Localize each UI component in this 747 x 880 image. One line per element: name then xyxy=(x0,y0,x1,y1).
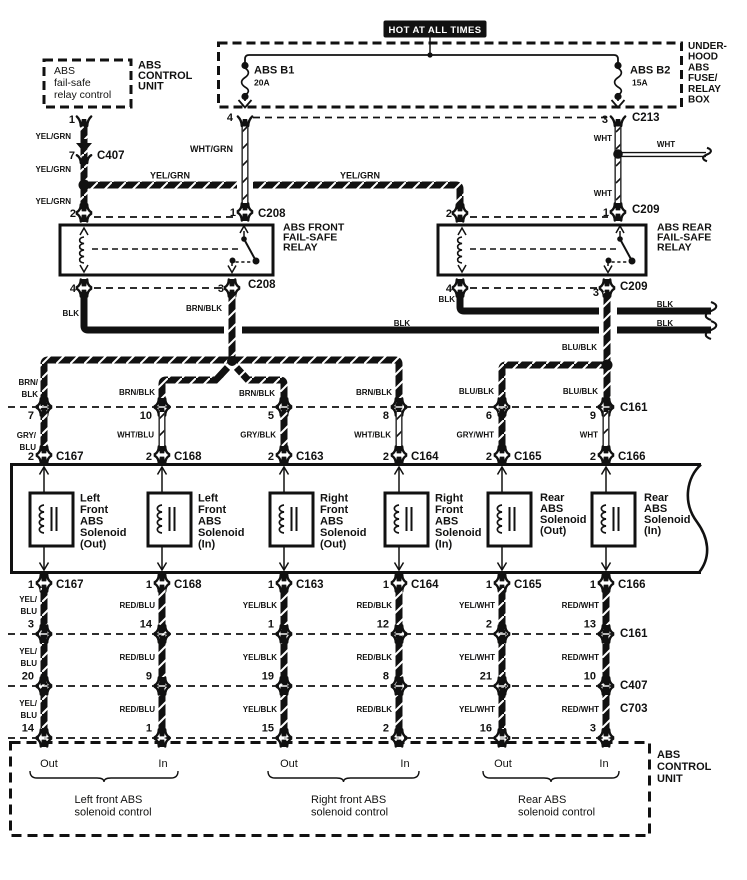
svg-text:9: 9 xyxy=(146,671,152,683)
svg-text:RED/BLK: RED/BLK xyxy=(356,653,392,662)
svg-text:BLU: BLU xyxy=(21,711,38,720)
svg-text:BLK: BLK xyxy=(394,319,411,328)
svg-text:7: 7 xyxy=(69,150,75,162)
svg-text:Solenoid: Solenoid xyxy=(80,527,126,539)
svg-text:YEL/BLK: YEL/BLK xyxy=(243,705,277,714)
svg-text:BRN/: BRN/ xyxy=(18,378,38,387)
svg-text:fail-safe: fail-safe xyxy=(54,77,91,89)
svg-text:C165: C165 xyxy=(514,451,542,463)
svg-text:CONTROL: CONTROL xyxy=(657,761,712,773)
svg-text:YEL/GRN: YEL/GRN xyxy=(35,165,71,174)
svg-text:7: 7 xyxy=(28,410,34,422)
svg-text:GRY/: GRY/ xyxy=(17,431,37,440)
svg-text:1: 1 xyxy=(146,723,152,735)
svg-text:4: 4 xyxy=(446,283,453,295)
svg-text:1: 1 xyxy=(268,579,274,591)
svg-text:1: 1 xyxy=(590,579,596,591)
svg-text:YEL/GRN: YEL/GRN xyxy=(35,132,71,141)
svg-text:Right: Right xyxy=(320,493,348,505)
svg-text:RELAY: RELAY xyxy=(688,84,721,95)
svg-text:2: 2 xyxy=(486,451,492,463)
svg-text:14: 14 xyxy=(22,723,35,735)
svg-text:(Out): (Out) xyxy=(540,525,567,537)
svg-text:1: 1 xyxy=(28,579,34,591)
svg-text:BLU: BLU xyxy=(21,659,38,668)
svg-text:Left: Left xyxy=(80,493,101,505)
svg-text:20: 20 xyxy=(22,671,34,683)
svg-text:Right: Right xyxy=(435,493,463,505)
svg-text:1: 1 xyxy=(146,579,152,591)
svg-text:Left: Left xyxy=(198,493,219,505)
svg-text:Right front ABS: Right front ABS xyxy=(311,794,386,806)
svg-text:BLK: BLK xyxy=(439,295,456,304)
svg-text:YEL/GRN: YEL/GRN xyxy=(150,171,190,181)
svg-text:(In): (In) xyxy=(435,539,452,551)
svg-text:8: 8 xyxy=(383,410,389,422)
svg-text:C163: C163 xyxy=(296,579,324,591)
svg-text:ABS: ABS xyxy=(54,65,75,77)
svg-text:1: 1 xyxy=(383,579,389,591)
svg-text:BLK: BLK xyxy=(657,300,674,309)
svg-text:9: 9 xyxy=(590,410,596,422)
svg-text:15A: 15A xyxy=(632,78,648,88)
svg-text:2: 2 xyxy=(70,208,76,220)
svg-text:C161: C161 xyxy=(620,628,648,640)
svg-text:1: 1 xyxy=(486,579,492,591)
svg-text:14: 14 xyxy=(140,619,153,631)
svg-text:3: 3 xyxy=(218,283,224,295)
svg-text:15: 15 xyxy=(262,723,274,735)
svg-text:3: 3 xyxy=(593,287,599,299)
svg-text:WHT: WHT xyxy=(594,134,612,143)
svg-text:10: 10 xyxy=(140,410,152,422)
svg-text:C165: C165 xyxy=(514,579,542,591)
svg-text:GRY/WHT: GRY/WHT xyxy=(457,431,495,440)
svg-text:C163: C163 xyxy=(296,451,324,463)
svg-text:13: 13 xyxy=(584,619,596,631)
svg-text:(Out): (Out) xyxy=(320,539,347,551)
svg-text:UNIT: UNIT xyxy=(138,81,164,93)
svg-text:UNDER-: UNDER- xyxy=(688,41,727,52)
svg-text:4: 4 xyxy=(227,112,234,124)
svg-text:YEL/BLK: YEL/BLK xyxy=(243,601,277,610)
svg-text:YEL/WHT: YEL/WHT xyxy=(459,653,495,662)
svg-text:10: 10 xyxy=(584,671,596,683)
svg-text:RED/BLK: RED/BLK xyxy=(356,601,392,610)
svg-text:C167: C167 xyxy=(56,451,84,463)
svg-text:C166: C166 xyxy=(618,579,646,591)
svg-text:C166: C166 xyxy=(618,451,646,463)
svg-text:In: In xyxy=(400,758,409,770)
svg-text:RED/WHT: RED/WHT xyxy=(562,601,599,610)
svg-text:relay control: relay control xyxy=(54,89,111,101)
svg-text:C209: C209 xyxy=(632,204,660,216)
svg-text:C407: C407 xyxy=(620,680,648,692)
svg-text:(In): (In) xyxy=(198,539,215,551)
svg-text:RED/BLU: RED/BLU xyxy=(119,653,155,662)
svg-text:ABS: ABS xyxy=(657,749,680,761)
svg-text:8: 8 xyxy=(383,671,389,683)
svg-text:3: 3 xyxy=(602,114,608,126)
svg-text:ABS: ABS xyxy=(320,516,343,528)
svg-text:C208: C208 xyxy=(258,208,286,220)
svg-text:3: 3 xyxy=(28,619,34,631)
svg-text:16: 16 xyxy=(480,723,492,735)
svg-text:C168: C168 xyxy=(174,579,202,591)
svg-text:In: In xyxy=(158,758,167,770)
svg-text:YEL/BLK: YEL/BLK xyxy=(243,653,277,662)
svg-text:ABS: ABS xyxy=(198,516,221,528)
svg-text:BOX: BOX xyxy=(688,95,710,106)
svg-text:YEL/GRN: YEL/GRN xyxy=(35,197,71,206)
svg-text:1: 1 xyxy=(268,619,274,631)
svg-text:C208: C208 xyxy=(248,279,276,291)
svg-text:Solenoid: Solenoid xyxy=(320,527,366,539)
svg-text:RED/BLU: RED/BLU xyxy=(119,705,155,714)
svg-text:C209: C209 xyxy=(620,281,648,293)
svg-text:BLU/BLK: BLU/BLK xyxy=(562,343,597,352)
svg-text:12: 12 xyxy=(377,619,389,631)
svg-text:RED/WHT: RED/WHT xyxy=(562,653,599,662)
svg-text:2: 2 xyxy=(268,451,274,463)
svg-text:BRN/BLK: BRN/BLK xyxy=(186,304,222,313)
svg-text:C168: C168 xyxy=(174,451,202,463)
svg-text:solenoid control: solenoid control xyxy=(311,807,388,819)
svg-text:RELAY: RELAY xyxy=(657,242,692,254)
svg-text:6: 6 xyxy=(486,410,492,422)
svg-text:Out: Out xyxy=(40,758,58,770)
svg-text:C164: C164 xyxy=(411,579,439,591)
svg-text:BLU/BLK: BLU/BLK xyxy=(459,387,494,396)
svg-text:ABS: ABS xyxy=(435,516,458,528)
svg-text:C167: C167 xyxy=(56,579,84,591)
svg-text:BRN/BLK: BRN/BLK xyxy=(239,389,275,398)
svg-text:C213: C213 xyxy=(632,112,660,124)
svg-text:solenoid control: solenoid control xyxy=(75,807,152,819)
svg-text:3: 3 xyxy=(590,723,596,735)
svg-text:WHT/BLK: WHT/BLK xyxy=(354,431,391,440)
svg-text:solenoid control: solenoid control xyxy=(518,807,595,819)
svg-text:Front: Front xyxy=(198,504,226,516)
svg-text:YEL/GRN: YEL/GRN xyxy=(340,171,380,181)
svg-text:RED/WHT: RED/WHT xyxy=(562,705,599,714)
svg-text:GRY/BLK: GRY/BLK xyxy=(240,431,276,440)
svg-text:ABS B2: ABS B2 xyxy=(630,65,670,77)
svg-text:Out: Out xyxy=(280,758,298,770)
svg-text:(In): (In) xyxy=(644,525,661,537)
svg-text:Rear ABS: Rear ABS xyxy=(518,794,566,806)
svg-text:C407: C407 xyxy=(97,150,125,162)
svg-text:2: 2 xyxy=(590,451,596,463)
svg-text:20A: 20A xyxy=(254,78,270,88)
svg-text:2: 2 xyxy=(446,208,452,220)
svg-text:YEL/WHT: YEL/WHT xyxy=(459,705,495,714)
svg-text:2: 2 xyxy=(28,451,34,463)
svg-text:2: 2 xyxy=(383,451,389,463)
svg-text:4: 4 xyxy=(70,283,77,295)
svg-text:WHT: WHT xyxy=(594,189,612,198)
svg-text:YEL/WHT: YEL/WHT xyxy=(459,601,495,610)
svg-text:RED/BLU: RED/BLU xyxy=(119,601,155,610)
svg-text:C703: C703 xyxy=(620,703,648,715)
svg-text:19: 19 xyxy=(262,671,274,683)
svg-text:ABS: ABS xyxy=(80,516,103,528)
svg-text:BLK: BLK xyxy=(63,309,80,318)
svg-text:RED/BLK: RED/BLK xyxy=(356,705,392,714)
svg-text:5: 5 xyxy=(268,410,274,422)
svg-text:Solenoid: Solenoid xyxy=(198,527,244,539)
svg-text:UNIT: UNIT xyxy=(657,773,683,785)
svg-text:BRN/BLK: BRN/BLK xyxy=(356,388,392,397)
svg-text:RELAY: RELAY xyxy=(283,242,318,254)
svg-text:C161: C161 xyxy=(620,402,648,414)
svg-text:Solenoid: Solenoid xyxy=(435,527,481,539)
svg-text:C164: C164 xyxy=(411,451,439,463)
svg-text:YEL/: YEL/ xyxy=(19,595,38,604)
svg-text:HOOD: HOOD xyxy=(688,52,718,63)
svg-text:2: 2 xyxy=(486,619,492,631)
svg-text:Left front ABS: Left front ABS xyxy=(75,794,143,806)
svg-text:YEL/: YEL/ xyxy=(19,647,38,656)
svg-text:Front: Front xyxy=(435,504,463,516)
svg-text:BLK: BLK xyxy=(22,390,39,399)
svg-text:YEL/: YEL/ xyxy=(19,699,38,708)
svg-text:WHT/GRN: WHT/GRN xyxy=(190,144,233,154)
svg-text:In: In xyxy=(599,758,608,770)
svg-text:Out: Out xyxy=(494,758,512,770)
svg-text:WHT: WHT xyxy=(580,431,598,440)
svg-text:BLU: BLU xyxy=(21,607,38,616)
svg-text:BLU/BLK: BLU/BLK xyxy=(563,387,598,396)
svg-text:WHT/BLU: WHT/BLU xyxy=(117,431,154,440)
svg-text:FUSE/: FUSE/ xyxy=(688,73,718,84)
svg-text:2: 2 xyxy=(383,723,389,735)
svg-text:Front: Front xyxy=(320,504,348,516)
svg-text:BRN/BLK: BRN/BLK xyxy=(119,388,155,397)
svg-text:WHT: WHT xyxy=(657,140,675,149)
svg-text:21: 21 xyxy=(480,671,492,683)
svg-text:ABS B1: ABS B1 xyxy=(254,65,294,77)
svg-text:1: 1 xyxy=(69,114,75,126)
svg-text:ABS: ABS xyxy=(688,62,709,73)
svg-text:2: 2 xyxy=(146,451,152,463)
svg-text:BLK: BLK xyxy=(657,319,674,328)
svg-text:Front: Front xyxy=(80,504,108,516)
svg-text:HOT AT ALL TIMES: HOT AT ALL TIMES xyxy=(389,25,482,36)
svg-text:(Out): (Out) xyxy=(80,539,107,551)
